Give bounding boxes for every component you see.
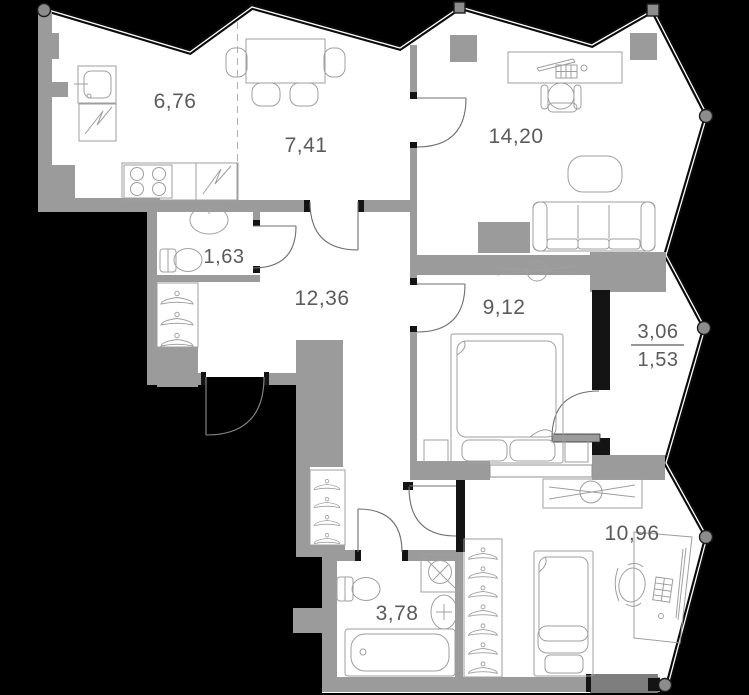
area-label-bath-small: 1,63 <box>204 246 245 268</box>
wall-node-icon <box>698 322 711 335</box>
area-label-kitchen: 6,76 <box>154 90 197 113</box>
area-label-bath-main: 3,78 <box>376 602 419 625</box>
area-label-balcony-full: 3,06 <box>638 321 679 343</box>
area-label-bedroom-main: 9,12 <box>483 296 526 319</box>
area-label-balcony-half: 1,53 <box>638 349 679 371</box>
wall-node-icon <box>38 4 51 17</box>
wall-node-icon <box>659 679 672 692</box>
area-label-bedroom-second: 10,96 <box>604 522 659 545</box>
area-label-hall: 12,36 <box>294 287 349 310</box>
area-label-living: 14,20 <box>488 125 543 148</box>
wall-node-icon <box>700 531 713 544</box>
area-label-dining: 7,41 <box>285 134 328 157</box>
interior-window <box>490 465 592 477</box>
wall-node-icon <box>454 2 465 13</box>
wall-node-icon <box>700 110 713 123</box>
wall-node-icon <box>647 4 659 16</box>
floor-plan-canvas: 6,76 7,41 14,20 1,63 12,36 9,12 3,06 1,5… <box>0 0 749 695</box>
floor-plan: 6,76 7,41 14,20 1,63 12,36 9,12 3,06 1,5… <box>0 0 749 695</box>
